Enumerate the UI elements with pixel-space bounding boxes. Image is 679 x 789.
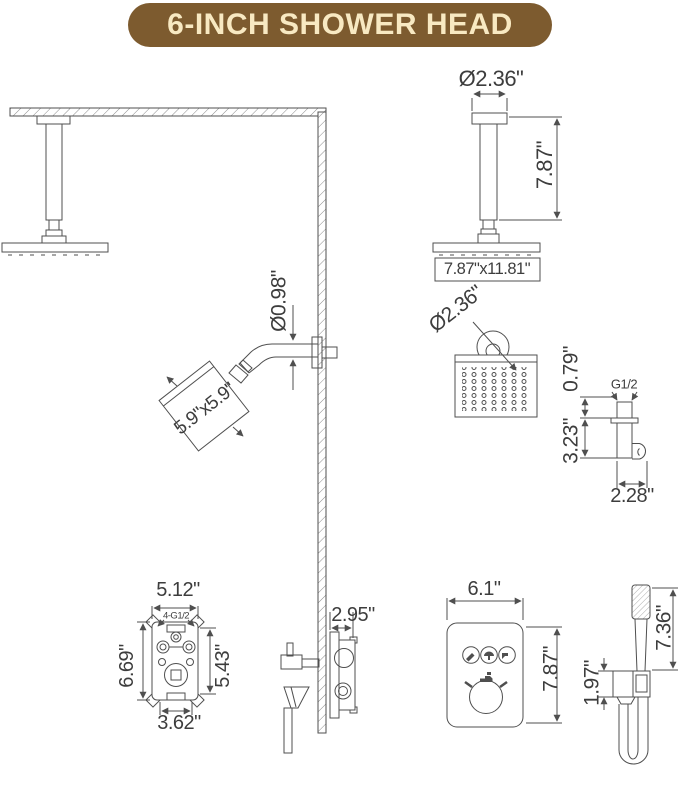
dim-valve-ports: 4-G1/2 — [163, 611, 189, 621]
product-dimension-diagram: 6-INCH SHOWER HEAD Ø2.36" 7.87" 7.87"x11… — [0, 0, 679, 789]
dim-ceiling-arm-diameter: Ø2.36" — [459, 68, 524, 90]
dim-valve-outer-height: 6.69" — [117, 644, 137, 688]
wall-bracket-drawing — [580, 392, 647, 488]
wall-surface — [318, 112, 326, 733]
dim-holder-inlet-height: 0.79" — [561, 346, 582, 392]
dim-ceiling-drop-height: 7.87" — [534, 141, 556, 189]
dim-valve-inner-width: 3.62" — [157, 713, 201, 733]
dim-holder-thread: G1/2 — [611, 378, 637, 391]
dim-ceiling-face-size: 7.87"x11.81" — [444, 261, 530, 278]
dim-holder-body-height: 3.23" — [561, 418, 582, 464]
dim-hand-shower-length: 7.36" — [654, 605, 675, 651]
dim-valve-trim-depth: 2.95" — [331, 605, 375, 625]
valve-front-drawing — [137, 606, 216, 715]
dim-panel-height: 7.87" — [541, 646, 562, 692]
dim-valve-outer-width: 5.12" — [156, 580, 200, 600]
dim-panel-width: 6.1" — [468, 579, 501, 599]
dim-hand-shower-bracket: 1.97" — [582, 660, 603, 706]
dim-wall-arm-diameter: Ø0.98" — [269, 270, 290, 332]
ceiling-surface — [10, 108, 326, 116]
dim-holder-depth: 2.28" — [610, 486, 654, 506]
dim-valve-inner-height: 5.43" — [213, 644, 233, 688]
ceiling-shower-drawing — [2, 116, 108, 255]
technical-line-art — [0, 0, 679, 789]
shower-head-face-drawing — [455, 322, 537, 417]
banner-title: 6-INCH SHOWER HEAD — [167, 8, 513, 42]
banner: 6-INCH SHOWER HEAD — [128, 3, 552, 47]
